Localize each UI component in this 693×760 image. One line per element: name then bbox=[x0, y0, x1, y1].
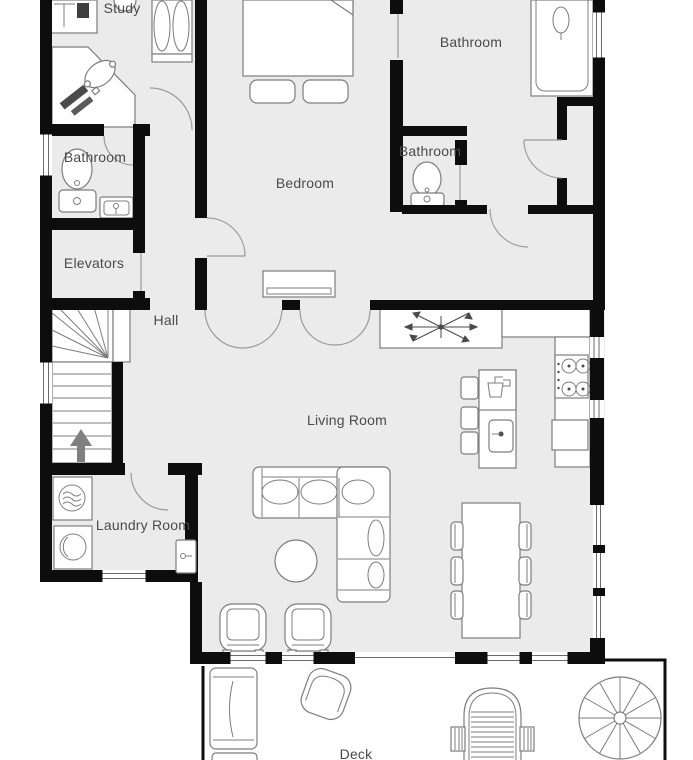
island-sink-icon bbox=[489, 420, 513, 452]
window bbox=[100, 570, 148, 582]
sliding-door-threshold bbox=[355, 652, 455, 664]
window bbox=[532, 652, 570, 664]
grill-icon bbox=[451, 688, 534, 760]
room-label-bathroom-left: Bathroom bbox=[64, 149, 126, 165]
dryer-icon bbox=[54, 526, 92, 569]
armchair-icon bbox=[285, 604, 331, 654]
window bbox=[593, 10, 605, 60]
armchair-icon bbox=[220, 604, 266, 654]
wardrobe-icon bbox=[152, 0, 192, 62]
sink-icon bbox=[100, 197, 133, 218]
door-closed-laundry bbox=[176, 540, 196, 573]
room-label-laundry-room: Laundry Room bbox=[96, 517, 190, 533]
stove-icon bbox=[555, 355, 590, 398]
window bbox=[282, 652, 316, 664]
window bbox=[590, 400, 604, 418]
spiral-staircase-icon bbox=[579, 677, 661, 759]
washing-machine-icon bbox=[53, 477, 92, 520]
room-label-bathroom-top: Bathroom bbox=[440, 34, 502, 50]
deck-chair-icon bbox=[297, 665, 354, 723]
room-label-elevators: Elevators bbox=[64, 255, 124, 271]
window-wall-dining bbox=[593, 505, 605, 638]
window bbox=[40, 360, 52, 406]
floor-plan-svg: Study Bathroom Bathroom Bathroom Bedroom… bbox=[0, 0, 693, 760]
lounge-chair-icon bbox=[210, 668, 257, 760]
pillow-icon bbox=[250, 80, 295, 103]
room-label-living-room: Living Room bbox=[307, 412, 387, 428]
coffee-table-icon bbox=[275, 540, 317, 582]
window bbox=[228, 652, 268, 664]
floor-plan-canvas: Study Bathroom Bathroom Bathroom Bedroom… bbox=[0, 0, 693, 760]
room-label-study: Study bbox=[104, 0, 141, 16]
pillow-icon bbox=[303, 80, 348, 103]
room-label-hall: Hall bbox=[154, 312, 179, 328]
window bbox=[40, 132, 52, 178]
bar-stool-icon bbox=[461, 377, 478, 454]
window bbox=[485, 652, 522, 664]
room-label-deck: Deck bbox=[340, 746, 373, 760]
room-label-bedroom: Bedroom bbox=[276, 175, 334, 191]
window bbox=[590, 337, 604, 358]
ceiling-fan-icon bbox=[405, 312, 477, 342]
oven-icon bbox=[552, 420, 588, 450]
dining-table-icon bbox=[462, 503, 520, 638]
closet-icon bbox=[380, 306, 502, 348]
kitchen-island-icon bbox=[479, 370, 516, 468]
room-label-bathroom-mid: Bathroom bbox=[399, 143, 461, 159]
dresser-icon bbox=[263, 271, 335, 297]
bathtub-icon bbox=[531, 0, 593, 96]
